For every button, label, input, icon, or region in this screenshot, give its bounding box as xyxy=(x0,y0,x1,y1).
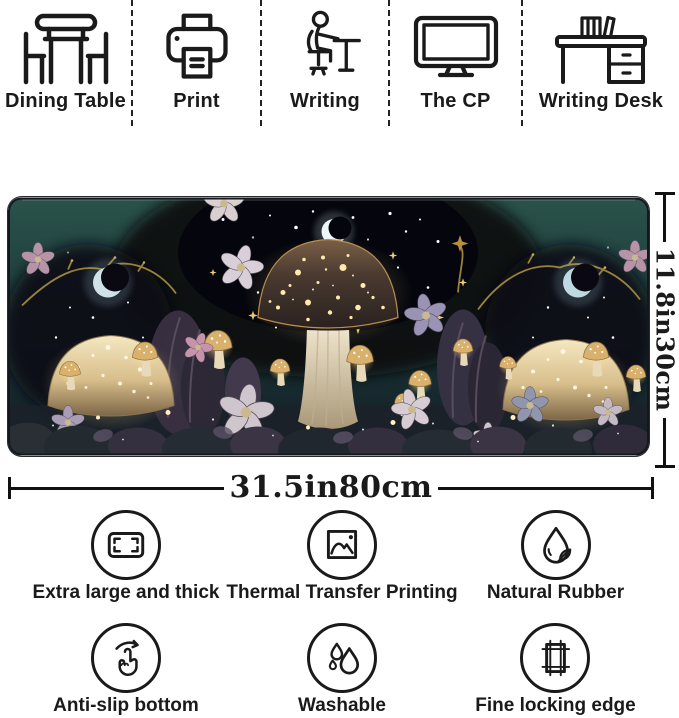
mousepad-product-image xyxy=(8,197,649,456)
writing-person-icon xyxy=(288,8,362,88)
usage-label: Dining Table xyxy=(5,90,126,113)
feature-washable: Washable xyxy=(298,623,386,716)
feature-label: Thermal Transfer Printing xyxy=(226,583,457,603)
feature-label: Natural Rubber xyxy=(487,583,624,603)
water-drops-icon xyxy=(307,623,377,693)
width-dimension: 31.5in80cm xyxy=(8,472,654,504)
features-grid: Extra large and thick Thermal Transfer P… xyxy=(0,510,679,716)
mousepad-artwork xyxy=(8,197,649,456)
locking-edge-icon xyxy=(520,623,590,693)
printer-icon xyxy=(159,8,235,88)
computer-monitor-icon xyxy=(412,8,500,88)
dimension-line xyxy=(438,487,651,490)
feature-extra-large: Extra large and thick xyxy=(33,510,220,603)
feature-thermal-printing: Thermal Transfer Printing xyxy=(226,510,457,603)
feature-label: Washable xyxy=(298,696,386,716)
height-dimension: 11.8in30cm xyxy=(650,192,679,468)
usage-label: Print xyxy=(173,90,220,113)
dimension-end-cap xyxy=(655,465,675,468)
dining-table-icon xyxy=(16,8,116,88)
usage-item-dining-table: Dining Table xyxy=(0,0,133,126)
width-dimension-label: 31.5in80cm xyxy=(224,473,437,503)
dimension-end-cap xyxy=(651,477,654,499)
dimension-line xyxy=(663,418,666,465)
usage-row: Dining Table Print xyxy=(0,0,679,126)
feature-label: Anti-slip bottom xyxy=(53,696,199,716)
dimension-line xyxy=(11,487,224,490)
dimension-line xyxy=(663,195,666,242)
usage-item-the-cp: The CP xyxy=(390,0,523,126)
usage-label: Writing xyxy=(290,90,360,113)
feature-label: Extra large and thick xyxy=(33,583,220,603)
usage-item-writing-desk: Writing Desk xyxy=(523,0,679,126)
usage-label: Writing Desk xyxy=(539,90,663,113)
product-infographic: Dining Table Print xyxy=(0,0,679,718)
hand-swipe-icon xyxy=(91,623,161,693)
feature-locking-edge: Fine locking edge xyxy=(475,623,635,716)
droplet-leaf-icon xyxy=(521,510,591,580)
photo-print-icon xyxy=(307,510,377,580)
usage-item-print: Print xyxy=(133,0,262,126)
usage-label: The CP xyxy=(420,90,490,113)
feature-natural-rubber: Natural Rubber xyxy=(487,510,624,603)
feature-anti-slip: Anti-slip bottom xyxy=(53,623,199,716)
writing-desk-icon xyxy=(551,8,651,88)
mat-size-icon xyxy=(91,510,161,580)
feature-label: Fine locking edge xyxy=(475,696,635,716)
usage-item-writing: Writing xyxy=(262,0,390,126)
height-dimension-label: 11.8in30cm xyxy=(653,242,677,417)
